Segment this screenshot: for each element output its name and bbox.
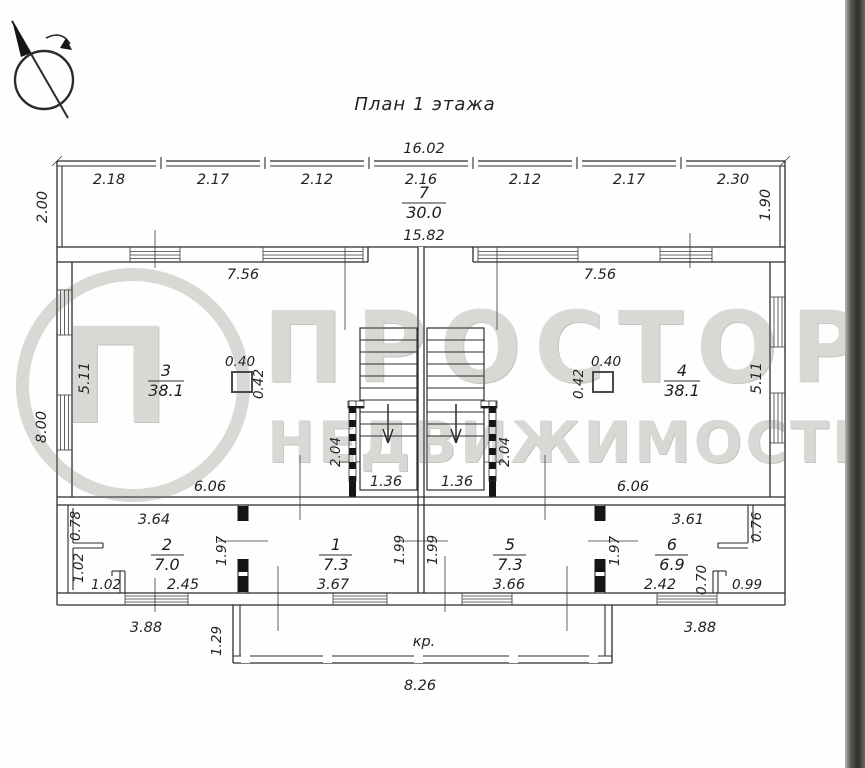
svg-text:1.97: 1.97 (214, 536, 230, 566)
flue-room4 (593, 372, 613, 392)
svg-text:2.30: 2.30 (717, 172, 749, 188)
room-4: 7.56 6.06 5.11 4 38.1 0.40 0.42 (571, 267, 765, 495)
svg-text:3: 3 (161, 361, 171, 380)
svg-text:4: 4 (677, 361, 687, 380)
dim-room3-top: 7.56 (227, 267, 259, 283)
svg-text:7: 7 (419, 183, 430, 202)
svg-text:38.1: 38.1 (148, 381, 184, 400)
svg-text:2.17: 2.17 (197, 172, 230, 188)
door-wall-2-1 (238, 505, 248, 593)
dim-room4-bottom: 6.06 (617, 479, 649, 495)
svg-text:2.45: 2.45 (167, 577, 199, 593)
svg-text:7.3: 7.3 (323, 555, 348, 574)
svg-text:6: 6 (667, 535, 677, 554)
dim-top-width: 16.02 (403, 141, 445, 157)
svg-text:1.36: 1.36 (441, 474, 473, 490)
svg-text:0.99: 0.99 (732, 577, 762, 593)
dim-room4-top: 7.56 (584, 267, 616, 283)
veranda-label: 7 30.0 15.82 (402, 183, 446, 244)
stairs-left (360, 328, 417, 490)
svg-text:3.61: 3.61 (672, 512, 704, 528)
svg-text:7.3: 7.3 (497, 555, 522, 574)
svg-text:2.04: 2.04 (328, 437, 344, 467)
svg-text:6.9: 6.9 (659, 555, 684, 574)
stairs-right (427, 328, 484, 490)
svg-text:0.78: 0.78 (68, 511, 84, 541)
svg-text:2: 2 (162, 535, 172, 554)
svg-text:1.99: 1.99 (392, 535, 408, 565)
svg-text:2.17: 2.17 (613, 172, 646, 188)
room-1: 1 7.3 3.67 1.99 (317, 535, 408, 593)
svg-text:0.42: 0.42 (571, 369, 587, 399)
room-3: 7.56 6.06 5.11 3 38.1 0.40 0.42 (77, 267, 267, 495)
svg-text:2.12: 2.12 (301, 172, 333, 188)
svg-text:0.40: 0.40 (225, 354, 255, 370)
room-2: 3.64 2 7.0 2.45 0.78 1.02 1.02 1.97 (68, 505, 230, 593)
porch: кр. 8.26 1.29 (209, 605, 612, 694)
flue-room3 (232, 372, 252, 392)
room-6: 3.61 6 6.9 2.42 0.76 0.70 0.99 (644, 505, 765, 595)
door-wall-5-6 (595, 505, 605, 593)
page-title: План 1 этажа (354, 94, 495, 115)
svg-text:1.36: 1.36 (370, 474, 402, 490)
svg-text:5: 5 (505, 535, 515, 554)
room-5: 5 7.3 3.66 1.99 1.97 (425, 535, 623, 593)
svg-text:0.40: 0.40 (591, 354, 621, 370)
dim-porch-depth: 1.29 (209, 626, 225, 656)
dim-room3-side: 5.11 (77, 362, 93, 394)
svg-text:3.64: 3.64 (138, 512, 170, 528)
svg-text:1.02: 1.02 (91, 577, 121, 593)
dim-left-height: 8.00 (34, 411, 50, 443)
dim-porch-width: 8.26 (404, 678, 436, 694)
svg-text:1: 1 (331, 535, 341, 554)
svg-text:0.42: 0.42 (251, 369, 267, 399)
bottom-wall (57, 593, 785, 605)
svg-text:38.1: 38.1 (664, 381, 700, 400)
svg-text:0.76: 0.76 (749, 512, 765, 542)
floor-plan-drawing: План 1 этажа 16.02 2.18 2.17 2.12 2.16 2… (0, 0, 865, 768)
svg-text:1.02: 1.02 (71, 553, 87, 583)
dim-room3-bottom: 6.06 (194, 479, 226, 495)
porch-label: кр. (413, 634, 436, 650)
scan-artifact-strip (845, 0, 865, 768)
dim-veranda-right: 1.90 (758, 189, 774, 221)
svg-text:2.12: 2.12 (509, 172, 541, 188)
svg-text:15.82: 15.82 (403, 228, 445, 244)
svg-text:2.42: 2.42 (644, 577, 676, 593)
dim-room4-side: 5.11 (749, 362, 765, 394)
dim-bottom-left-window: 3.88 (130, 620, 162, 636)
dim-bottom-right-window: 3.88 (684, 620, 716, 636)
north-arrow-icon (12, 20, 73, 118)
svg-text:3.67: 3.67 (317, 577, 350, 593)
svg-text:1.99: 1.99 (425, 535, 441, 565)
svg-text:2.18: 2.18 (93, 172, 125, 188)
dim-veranda-left: 2.00 (35, 191, 51, 223)
svg-text:3.66: 3.66 (493, 577, 525, 593)
floor-plan-page: План 1 этажа 16.02 2.18 2.17 2.12 2.16 2… (0, 0, 865, 768)
veranda-window-ticks (156, 157, 686, 169)
svg-text:7.0: 7.0 (154, 555, 179, 574)
svg-text:1.97: 1.97 (607, 536, 623, 566)
svg-text:0.70: 0.70 (694, 565, 710, 595)
svg-text:2.04: 2.04 (497, 437, 513, 467)
svg-text:30.0: 30.0 (406, 203, 442, 222)
